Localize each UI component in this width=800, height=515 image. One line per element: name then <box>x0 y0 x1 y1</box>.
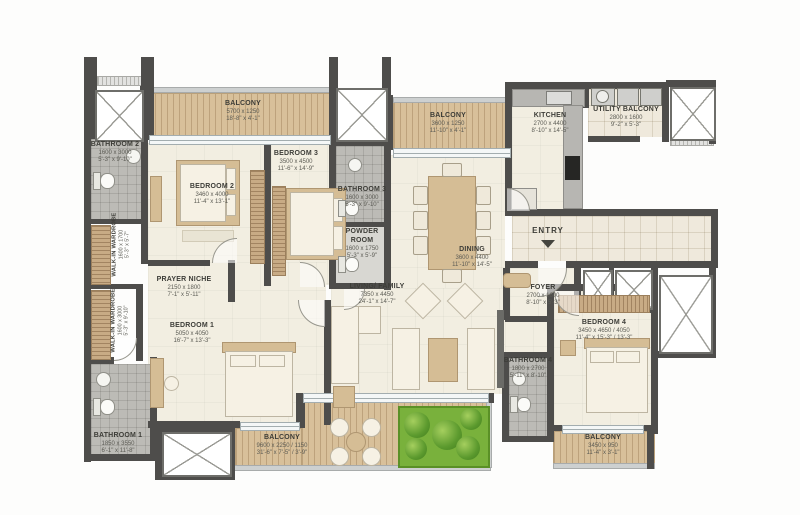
plant <box>404 412 430 438</box>
shaft-vent <box>97 76 143 86</box>
shaft-box <box>162 432 232 477</box>
desk <box>150 358 164 408</box>
room-label-bathroom-1: BATHROOM 1 1850 x 3550 6'-1" x 11'-8" <box>86 432 150 456</box>
room-label-walk-in-wardrobe-2: WALK-IN WARDROBE 1600 x 1700 5'-3" x 5'-… <box>111 212 130 278</box>
room-label-bedroom-3: BEDROOM 3 3500 x 4500 11'-6" x 14'-9" <box>258 150 334 174</box>
sink <box>348 158 362 172</box>
room-label-powder-room: POWDER ROOM 1600 x 1750 5'-3" x 5'-9" <box>334 228 390 261</box>
window <box>393 148 511 158</box>
utility-sink <box>617 88 639 106</box>
wall <box>566 261 718 268</box>
kitchen-sink <box>546 91 572 105</box>
wall <box>324 300 331 425</box>
sink <box>96 372 111 387</box>
room-label-balcony-top-left: BALCONY 5700 x 1250 18'-8" x 4'-1" <box>195 100 291 124</box>
dryer <box>640 88 662 106</box>
balcony-rail <box>553 463 655 469</box>
wall <box>384 140 391 290</box>
patio-chair <box>362 447 381 466</box>
room-label-living-family: LIVING/ FAMILY 7350 x 4450 24'-1" x 14'-… <box>335 283 419 307</box>
dining-chair <box>476 211 491 230</box>
room-label-balcony-bottom-right: BALCONY 3450 x 950 11'-4" x 3'-1" <box>560 434 646 458</box>
toilet <box>100 399 115 415</box>
entry-label: ENTRY <box>524 226 572 236</box>
room-label-foyer: FOYER 2700 x 1600 8'-10" x 5'-3" <box>514 284 572 308</box>
window <box>303 393 489 403</box>
wall <box>329 57 338 87</box>
room-label-bathroom-4: BATHROOM 4 1800 x 2700 5'-11" x 8'-10" <box>502 357 554 381</box>
patio-table <box>346 432 366 452</box>
patio-chair <box>330 418 349 437</box>
sofa <box>467 328 495 390</box>
bed-mattress <box>290 192 334 256</box>
dining-chair <box>442 163 462 177</box>
entry-arrow-icon <box>541 240 555 248</box>
wall <box>136 285 143 361</box>
dining-chair <box>413 186 428 205</box>
window <box>562 425 644 434</box>
plant <box>405 438 427 460</box>
dining-chair <box>413 211 428 230</box>
balcony-rail <box>393 97 511 103</box>
wall <box>148 260 210 266</box>
wall <box>155 425 162 480</box>
room-label-bedroom-4: BEDROOM 4 3450 x 4650 / 4050 11'-4" x 15… <box>548 319 660 343</box>
dining-chair <box>442 269 462 283</box>
floor-corridor <box>512 216 711 261</box>
plant <box>456 436 480 460</box>
balcony-rail <box>148 87 332 93</box>
room-label-balcony-bottom: BALCONY 9600 x 2250 / 1150 31'-6" x 7'-5… <box>242 434 322 458</box>
wardrobe-unit <box>272 186 286 276</box>
dining-chair <box>413 236 428 255</box>
patio-chair <box>362 418 381 437</box>
washer-drum-icon <box>596 90 609 103</box>
room-label-utility-balcony: UTILITY BALCONY 2800 x 1600 9'-2" x 5'-3… <box>588 106 664 130</box>
room-label-prayer-niche: PRAYER NICHE 2150 x 1800 7'-1" x 5'-11" <box>146 276 222 300</box>
shaft-box <box>95 90 144 142</box>
coffee-table <box>428 338 458 382</box>
wall <box>711 209 718 268</box>
dresser <box>150 176 162 222</box>
wardrobe-unit <box>91 290 111 360</box>
floor-passage <box>505 318 549 352</box>
floor-plan: BALCONY 5700 x 1250 18'-8" x 4'-1" BATHR… <box>0 0 800 515</box>
side-table <box>333 386 355 408</box>
toilet <box>517 397 531 412</box>
shaft-box <box>659 275 713 354</box>
room-label-walk-in-wardrobe-1: WALK-IN WARDROBE 1600 x 3000 5'-3" x 9'-… <box>110 285 129 357</box>
toilet <box>100 173 115 189</box>
sofa <box>392 328 420 390</box>
pillow <box>230 355 256 367</box>
patio-chair <box>330 447 349 466</box>
sofa-l <box>331 306 359 384</box>
room-label-kitchen: KITCHEN 2700 x 4400 8'-10" x 14'-5" <box>514 112 586 136</box>
dining-chair <box>476 186 491 205</box>
shaft-box <box>336 88 388 142</box>
wall <box>382 57 391 87</box>
pillow <box>616 351 640 363</box>
room-label-dining: DINING 3600 x 4400 11'-10" x 14'-5" <box>434 246 510 270</box>
room-label-bedroom-1: BEDROOM 1 5050 x 4050 16'-7" x 13'-3" <box>152 322 232 346</box>
wall <box>505 209 718 216</box>
wall <box>647 425 654 469</box>
chair <box>164 376 179 391</box>
pillow <box>259 355 285 367</box>
wall <box>155 425 235 432</box>
pillow <box>590 351 614 363</box>
room-label-bathroom-3: BATHROOM 3 1600 x 3000 5'-3" x 9'-10" <box>334 186 390 210</box>
room-label-bathroom-2: BATHROOM 2 1600 x 3000 5'-3" x 9'-10" <box>86 141 144 165</box>
window <box>240 422 300 431</box>
window <box>149 135 331 145</box>
wall <box>228 260 235 302</box>
wall <box>84 132 91 462</box>
room-label-bedroom-2: BEDROOM 2 3460 x 4000 11'-4" x 13'-1" <box>176 183 248 207</box>
plant <box>460 408 482 430</box>
wardrobe-unit <box>91 225 111 285</box>
wall <box>505 316 550 322</box>
hob <box>565 156 580 180</box>
wardrobe-unit <box>250 170 265 264</box>
room-label-balcony-top-mid: BALCONY 3600 x 1250 11'-10" x 4'-1" <box>400 112 496 136</box>
shaft-box <box>670 87 716 141</box>
wall <box>588 136 640 142</box>
